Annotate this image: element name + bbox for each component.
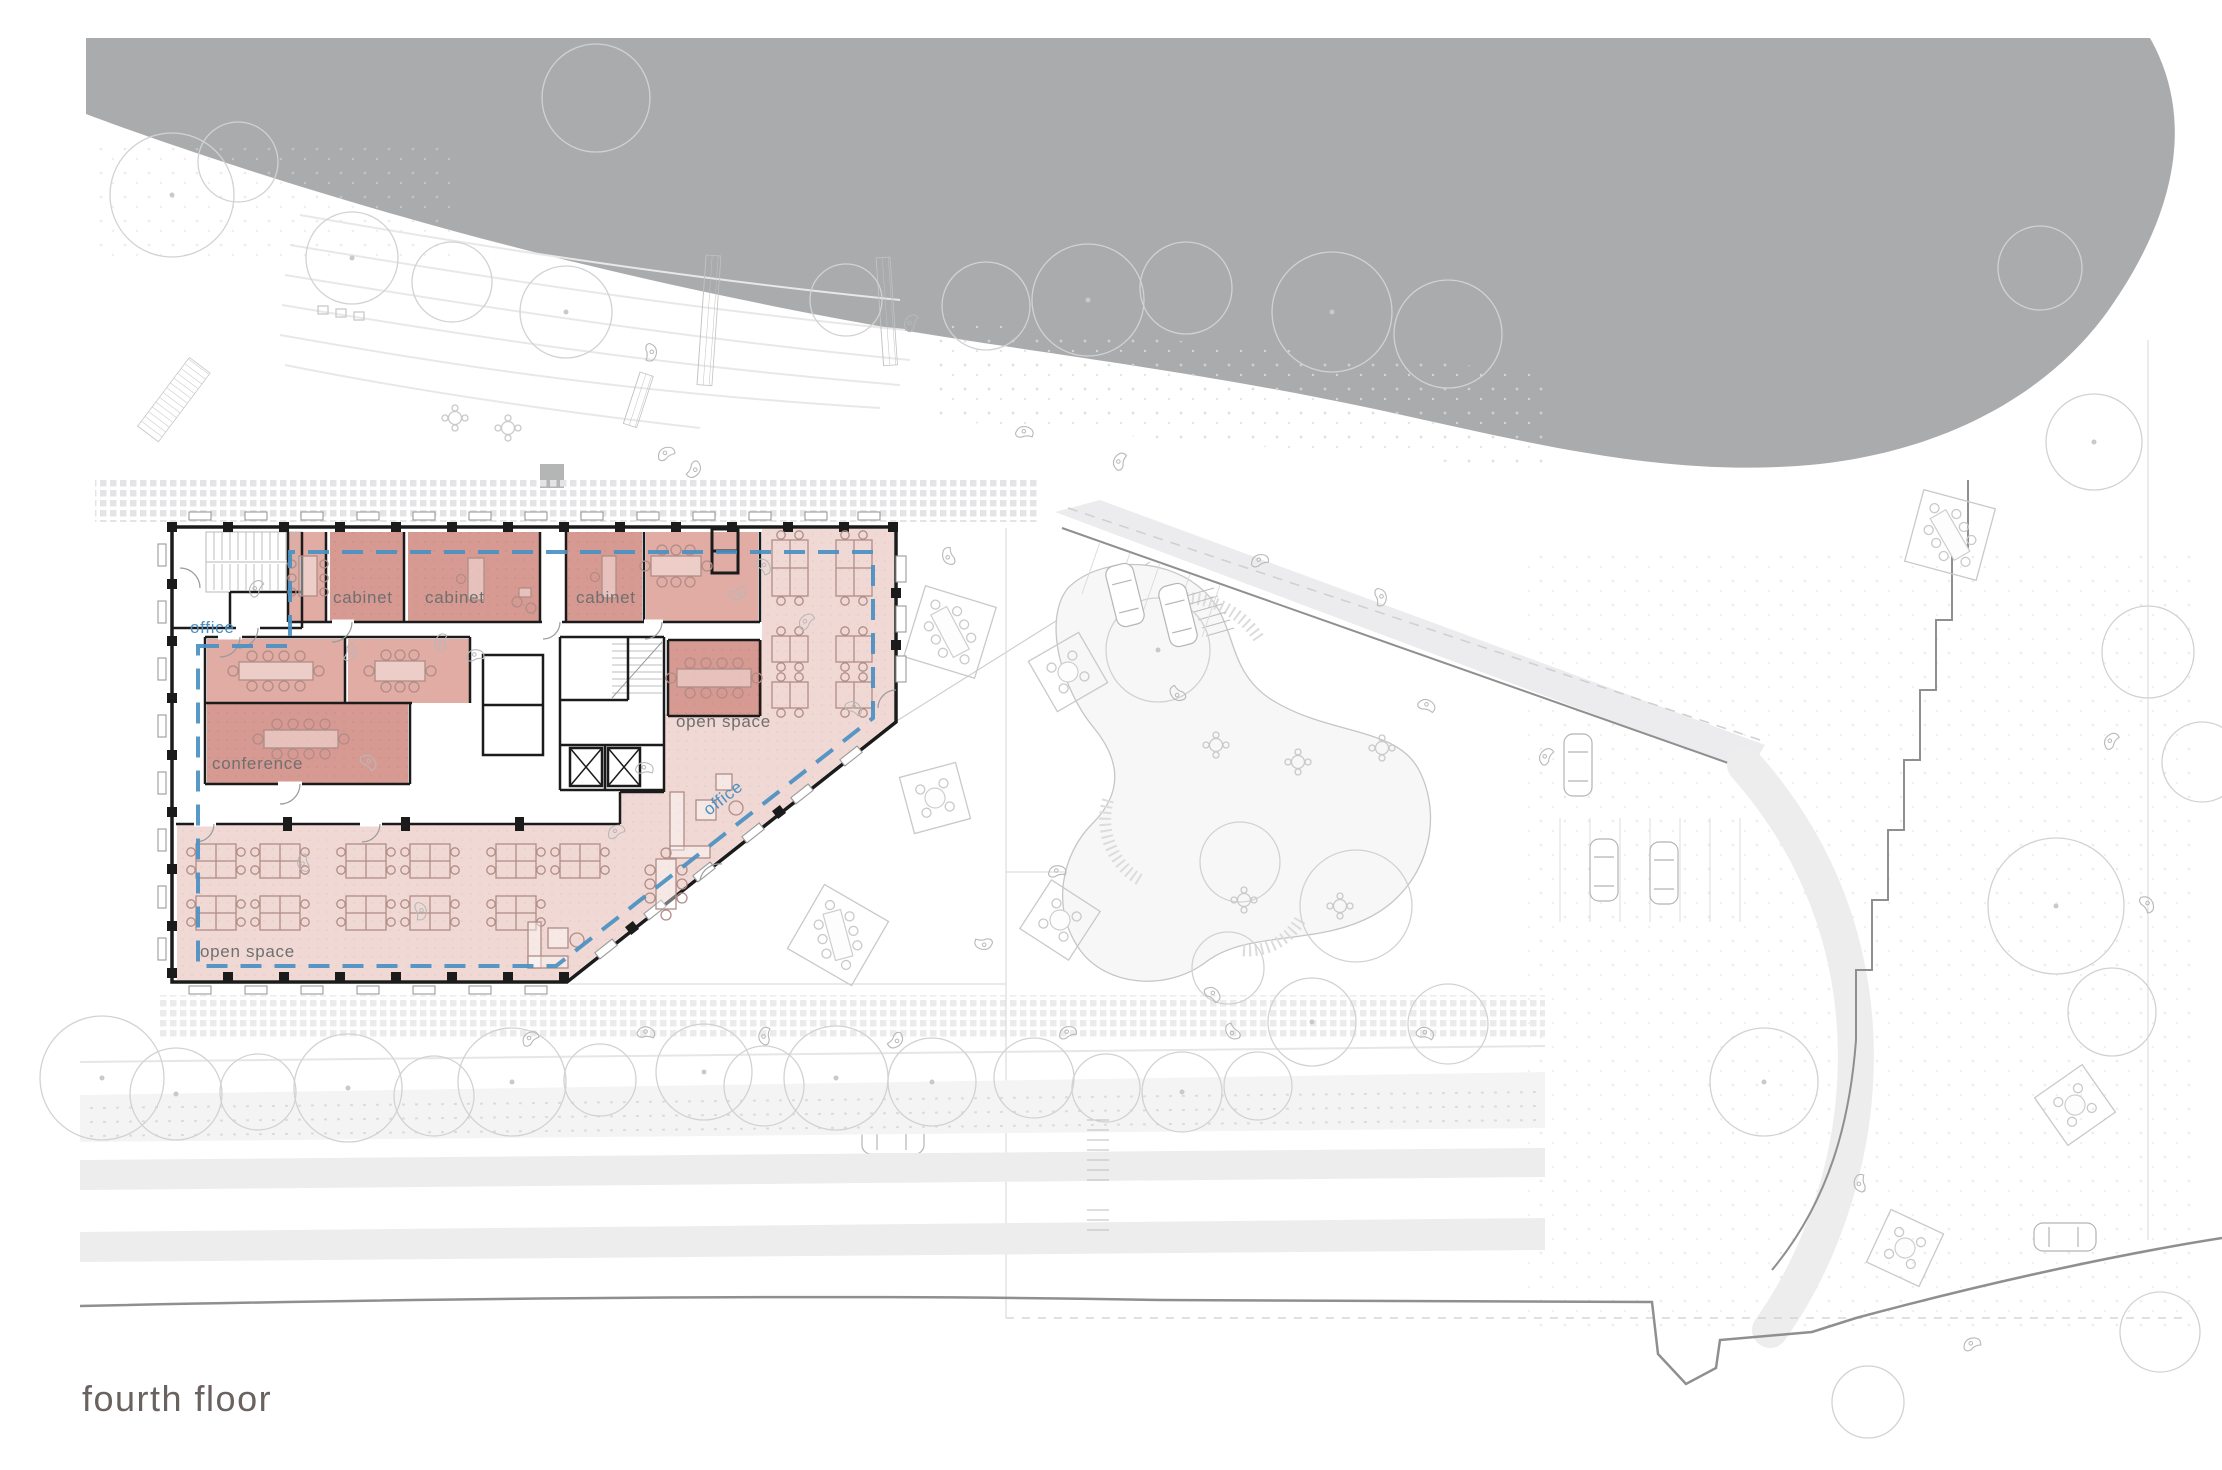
room-label-open-space-upper: open space xyxy=(676,712,771,732)
car xyxy=(1650,842,1678,904)
car xyxy=(1590,839,1618,901)
site-plan-drawing xyxy=(0,0,2222,1470)
steps-path xyxy=(623,372,653,428)
drawing-title: fourth floor xyxy=(82,1378,272,1420)
room-label-cabinet-3: cabinet xyxy=(576,588,636,608)
floor-plan: cabinet cabinet cabinet conference open … xyxy=(0,0,2222,1470)
room-label-open-space-lower: open space xyxy=(200,942,295,962)
room-label-cabinet-2: cabinet xyxy=(425,588,485,608)
room-label-cabinet-1: cabinet xyxy=(333,588,393,608)
car xyxy=(1564,734,1592,796)
hillside-stairs xyxy=(138,357,211,441)
zone-label-office-left: office xyxy=(190,618,235,638)
room-label-conference: conference xyxy=(212,754,303,774)
building xyxy=(158,512,906,994)
car xyxy=(2034,1223,2096,1251)
